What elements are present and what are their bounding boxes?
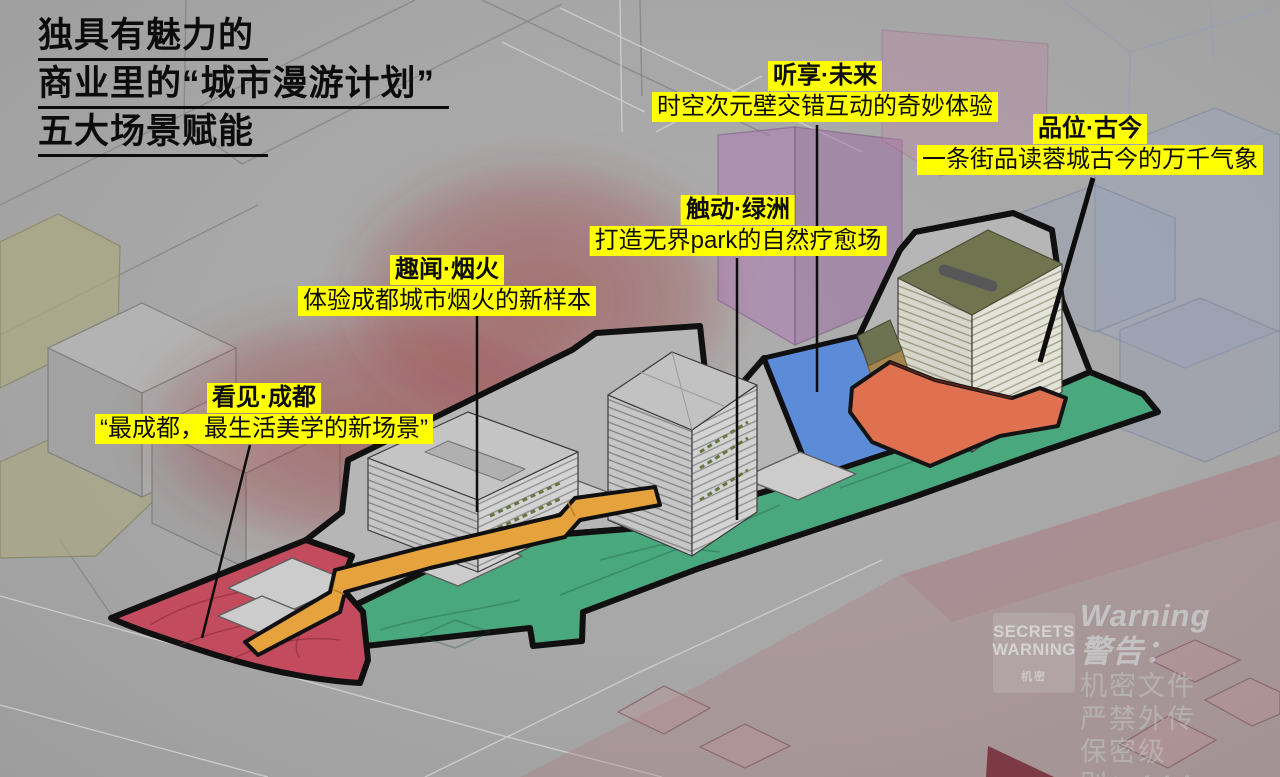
- scene-label-title: 趣闻·烟火: [390, 255, 504, 285]
- scene-label-subtitle: 打造无界park的自然疗愈场: [590, 226, 887, 256]
- scene-label-title: 看见·成都: [207, 383, 321, 413]
- scene-label-quwen-yanhuo: 趣闻·烟火 体验成都城市烟火的新样本: [298, 255, 596, 316]
- title-line-2: 商业里的“城市漫游计划”: [38, 64, 449, 109]
- scene-label-subtitle: 一条街品读蓉城古今的万千气象: [917, 145, 1263, 175]
- scene-label-chudong-lvzhou: 触动·绿洲 打造无界park的自然疗愈场: [590, 195, 887, 256]
- scene-label-pinwei-gujin: 品位·古今 一条街品读蓉城古今的万千气象: [917, 114, 1263, 175]
- scene-label-kanjian-chengdu: 看见·成都 “最成都，最生活美学的新场景”: [95, 383, 433, 444]
- scene-label-subtitle: 体验成都城市烟火的新样本: [298, 286, 596, 316]
- slide-canvas: 独具有魅力的 商业里的“城市漫游计划” 五大场景赋能 听享·未来 时空次元壁交错…: [0, 0, 1280, 777]
- scene-label-title: 听享·未来: [768, 61, 882, 91]
- office-tower-middle: [608, 352, 757, 556]
- scene-label-tingxiang-weilai: 听享·未来 时空次元壁交错互动的奇妙体验: [652, 61, 998, 122]
- scene-label-subtitle: “最成都，最生活美学的新场景”: [95, 414, 433, 444]
- title-line-3: 五大场景赋能: [38, 112, 268, 157]
- scene-label-title: 品位·古今: [1033, 114, 1147, 144]
- title-line-1: 独具有魅力的: [38, 16, 268, 61]
- scene-label-title: 触动·绿洲: [681, 195, 795, 225]
- page-title: 独具有魅力的 商业里的“城市漫游计划” 五大场景赋能: [38, 16, 449, 160]
